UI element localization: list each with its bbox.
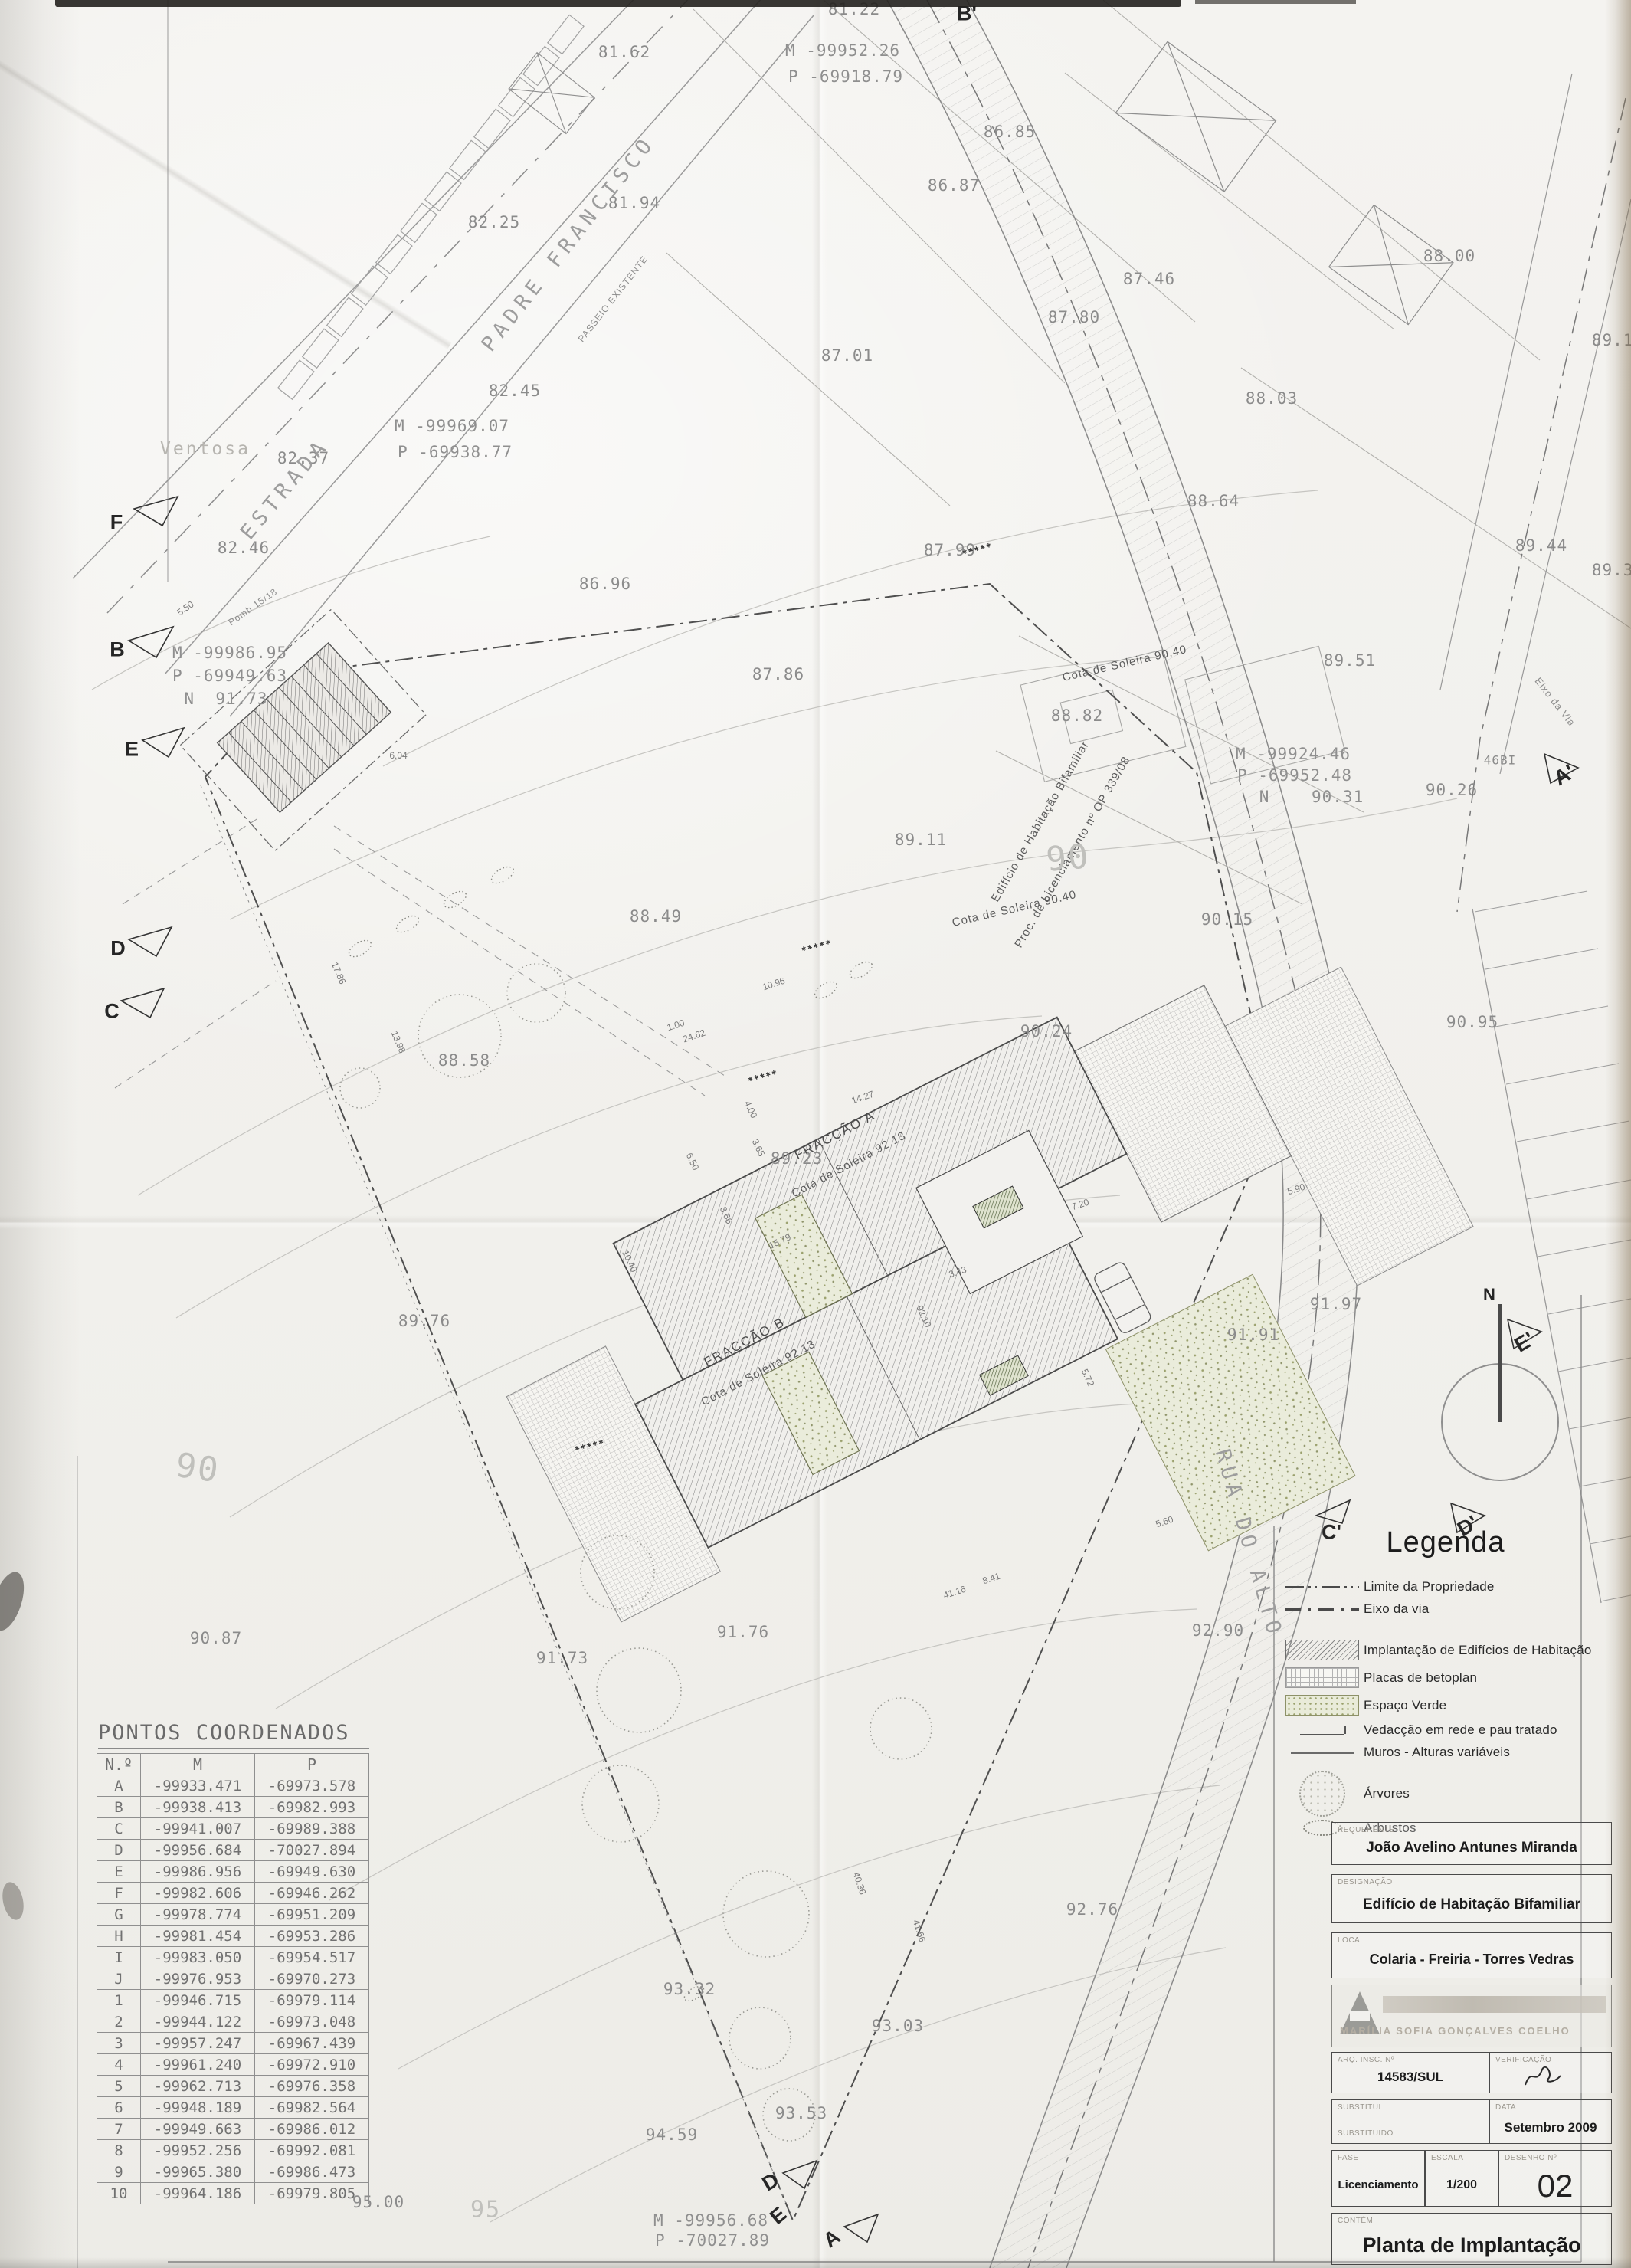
plan-label: 88.82 <box>1051 706 1103 725</box>
table-row: E-99986.956-69949.630 <box>97 1861 369 1883</box>
plan-label: 10.96 <box>761 975 787 993</box>
plan-label: 17.86 <box>329 960 349 985</box>
plan-label: 10.40 <box>620 1248 639 1273</box>
designacao-label: DESIGNAÇÃO <box>1338 1878 1393 1886</box>
betoplan-symbol-icon <box>1285 1667 1359 1688</box>
data-label: DATA <box>1495 2103 1516 2112</box>
coord-m: -99946.715 <box>141 1990 255 2011</box>
coord-p: -69946.262 <box>255 1883 369 1904</box>
plan-label: P -69952.48 <box>1237 766 1352 785</box>
plan-label: B <box>110 638 125 662</box>
plan-label: 46BI <box>1484 753 1517 768</box>
coordinates-table: PONTOS COORDENADOS N.ºMP A-99933.471-699… <box>97 1721 369 2204</box>
plan-label: ✱✱✱✱✱ <box>747 1067 779 1083</box>
legend: Legenda Limite da PropriedadeEixo da via… <box>1281 1526 1610 1843</box>
point-id: E <box>97 1861 141 1883</box>
legend-item-label: Espaço Verde <box>1364 1698 1446 1713</box>
contem-label: CONTÉM <box>1338 2217 1373 2225</box>
coord-m: -99982.606 <box>141 1883 255 1904</box>
point-id: 2 <box>97 2011 141 2033</box>
plan-label: 90 <box>1044 837 1091 880</box>
coord-m: -99956.684 <box>141 1840 255 1861</box>
legend-item-eixo: Eixo da via <box>1281 1601 1610 1617</box>
table-row: 6-99948.189-69982.564 <box>97 2097 369 2119</box>
requerente-label: REQUERENTE <box>1338 1826 1394 1834</box>
plan-label: 82.46 <box>218 539 270 557</box>
plan-label: 5.90 <box>1286 1182 1307 1198</box>
legend-item-label: Implantação de Edifícios de Habitação <box>1364 1643 1592 1658</box>
plan-label: 90.24 <box>1020 1022 1073 1041</box>
plan-label: 87.01 <box>821 346 873 365</box>
plan-label: 92.76 <box>1066 1900 1118 1919</box>
table-row: 7-99949.663-69986.012 <box>97 2119 369 2140</box>
point-id: I <box>97 1947 141 1968</box>
plan-label: 87.80 <box>1048 308 1100 326</box>
coordinates-column-header: M <box>141 1754 255 1775</box>
coord-m: -99965.380 <box>141 2161 255 2183</box>
legend-item-muros: Muros - Alturas variáveis <box>1281 1745 1610 1760</box>
coord-m: -99952.256 <box>141 2140 255 2161</box>
substitui-label: SUBSTITUI <box>1338 2103 1381 2112</box>
point-id: 9 <box>97 2161 141 2183</box>
desenho-value: 02 <box>1499 2168 1611 2204</box>
coord-m: -99933.471 <box>141 1775 255 1797</box>
escala-label: ESCALA <box>1431 2154 1463 2162</box>
table-row: 10-99964.186-69979.805 <box>97 2183 369 2204</box>
plan-label: Ventosa <box>160 439 251 459</box>
coord-p: -69949.630 <box>255 1861 369 1883</box>
plan-label: 5.60 <box>1154 1514 1175 1530</box>
substituido-label: SUBSTITUIDO <box>1338 2129 1394 2138</box>
point-id: 7 <box>97 2119 141 2140</box>
plan-label: F <box>110 511 123 535</box>
stamp-band <box>1383 1996 1606 2013</box>
plan-label: A <box>819 2225 845 2253</box>
plan-label: 92.10 <box>914 1303 933 1329</box>
legend-item-vedacao: Vedacção em rede e pau tratado <box>1281 1722 1610 1738</box>
plan-label: Eixo da Via <box>1533 675 1578 729</box>
plan-label: P -69949.63 <box>172 667 287 685</box>
table-row: 4-99961.240-69972.910 <box>97 2054 369 2076</box>
plan-label: 87.46 <box>1123 270 1175 288</box>
plan-label: Pomb 15/18 <box>226 586 279 628</box>
requerente-value: João Avelino Antunes Miranda <box>1332 1840 1611 1857</box>
coord-p: -69954.517 <box>255 1947 369 1968</box>
coord-m: -99949.663 <box>141 2119 255 2140</box>
data-value: Setembro 2009 <box>1490 2120 1611 2135</box>
plan-label: E <box>765 2202 791 2229</box>
point-id: B <box>97 1797 141 1818</box>
plan-label: P -69918.79 <box>788 67 903 86</box>
coord-p: -69973.578 <box>255 1775 369 1797</box>
plan-label: 93.03 <box>872 2017 924 2035</box>
plan-label: 8.41 <box>981 1571 1002 1587</box>
coordinates-table-header: N.ºMP <box>97 1754 369 1775</box>
coord-m: -99978.774 <box>141 1904 255 1926</box>
coord-p: -69982.993 <box>255 1797 369 1818</box>
local-label: LOCAL <box>1338 1936 1364 1945</box>
table-row: 5-99962.713-69976.358 <box>97 2076 369 2097</box>
plan-label: 7.20 <box>1070 1197 1091 1213</box>
point-id: F <box>97 1883 141 1904</box>
plan-label: C <box>104 1000 120 1024</box>
plan-label: 90.26 <box>1426 781 1478 799</box>
coord-m: -99962.713 <box>141 2076 255 2097</box>
table-row: F-99982.606-69946.262 <box>97 1883 369 1904</box>
coord-m: -99941.007 <box>141 1818 255 1840</box>
coordinates-table-title: PONTOS COORDENADOS <box>98 1721 369 1749</box>
plan-label: E <box>125 738 139 762</box>
coord-p: -69953.286 <box>255 1926 369 1947</box>
point-id: 6 <box>97 2097 141 2119</box>
table-row: D-99956.684-70027.894 <box>97 1840 369 1861</box>
plan-label: 91.91 <box>1227 1326 1279 1344</box>
coord-m: -99976.953 <box>141 1968 255 1990</box>
plan-label: P -69938.77 <box>398 443 513 461</box>
plan-label: 41.16 <box>942 1584 968 1601</box>
espaco-verde-symbol-icon <box>1285 1695 1359 1716</box>
designacao-value: Edifício de Habitação Bifamiliar <box>1332 1896 1611 1913</box>
plan-label: 81.62 <box>598 43 650 61</box>
plan-label: RUA DO ALTO <box>1210 1447 1287 1641</box>
architect-stamp-text: MARÍLIA SOFIA GONÇALVES COELHO <box>1340 2025 1608 2037</box>
plan-label: M -99969.07 <box>395 417 509 435</box>
desenho-label: DESENHO Nº <box>1505 2154 1557 2162</box>
plan-label: 40.36 <box>851 1871 869 1896</box>
table-row: J-99976.953-69970.273 <box>97 1968 369 1990</box>
coord-m: -99961.240 <box>141 2054 255 2076</box>
plan-label: 91.76 <box>717 1623 769 1641</box>
plan-label: PADRE FRANCISCO <box>477 131 660 356</box>
plan-label: 89.76 <box>398 1312 450 1330</box>
verification-signature <box>1521 2063 1574 2089</box>
plan-label: PASSEIO EXISTENTE <box>576 254 650 344</box>
plan-label: 95 <box>470 2197 501 2224</box>
paper-bottom-shadow <box>0 2257 1631 2268</box>
plan-label: 88.58 <box>438 1051 490 1070</box>
plan-label: M -99986.95 <box>172 644 287 662</box>
plan-label: 93.53 <box>775 2104 827 2122</box>
table-row: C-99941.007-69989.388 <box>97 1818 369 1840</box>
coord-m: -99944.122 <box>141 2011 255 2033</box>
escala-value: 1/200 <box>1426 2178 1498 2192</box>
point-id: D <box>97 1840 141 1861</box>
plan-label: 5.72 <box>1079 1367 1097 1388</box>
legend-item-implantacao: Implantação de Edifícios de Habitação <box>1281 1640 1610 1660</box>
coord-m: -99948.189 <box>141 2097 255 2119</box>
plan-label: 6.50 <box>684 1151 702 1172</box>
local-value: Colaria - Freiria - Torres Vedras <box>1332 1952 1611 1968</box>
coord-p: -69967.439 <box>255 2033 369 2054</box>
plan-label: P -70027.89 <box>655 2231 770 2250</box>
plan-label: 88.00 <box>1423 247 1475 265</box>
plan-label: 90.95 <box>1446 1013 1498 1031</box>
limite-symbol-icon <box>1285 1586 1359 1588</box>
paper-right-shadow <box>1605 0 1631 2268</box>
plan-label: N <box>1483 1285 1495 1305</box>
legend-item-betoplan: Placas de betoplan <box>1281 1667 1610 1688</box>
table-row: 8-99952.256-69992.081 <box>97 2140 369 2161</box>
point-id: 1 <box>97 1990 141 2011</box>
scan-top-strip-2 <box>1195 0 1356 4</box>
coord-m: -99983.050 <box>141 1947 255 1968</box>
plan-label: 6.04 <box>389 750 407 761</box>
arq-insc-label: ARQ. INSC. Nº <box>1338 2056 1394 2064</box>
plan-label: M -99956.68 <box>653 2211 768 2230</box>
coord-m: -99981.454 <box>141 1926 255 1947</box>
point-id: 8 <box>97 2140 141 2161</box>
plan-label: 93.32 <box>663 1980 716 1998</box>
plan-label: 5.50 <box>175 599 195 618</box>
plan-label: 1.00 <box>666 1018 686 1034</box>
plan-label: 41.66 <box>911 1919 928 1944</box>
table-row: 1-99946.715-69979.114 <box>97 1990 369 2011</box>
plan-label: Cota de Soleira 90.40 <box>951 888 1078 929</box>
coord-p: -69976.358 <box>255 2076 369 2097</box>
legend-item-label: Placas de betoplan <box>1364 1670 1477 1686</box>
plan-label: 13.98 <box>389 1029 408 1054</box>
vedacao-symbol-icon <box>1300 1725 1344 1735</box>
table-row: B-99938.413-69982.993 <box>97 1797 369 1818</box>
coord-p: -70027.894 <box>255 1840 369 1861</box>
plan-label: D <box>758 2168 783 2197</box>
plan-label: 89.11 <box>895 831 947 849</box>
implantacao-symbol-icon <box>1285 1640 1359 1660</box>
point-id: 3 <box>97 2033 141 2054</box>
plan-label: 88.64 <box>1187 492 1240 510</box>
table-row: H-99981.454-69953.286 <box>97 1926 369 1947</box>
scanned-site-plan-sheet: 81.2281.62M -99952.26P -69918.7986.8586.… <box>0 0 1631 2268</box>
point-id: 5 <box>97 2076 141 2097</box>
coordinates-column-header: P <box>255 1754 369 1775</box>
coord-p: -69973.048 <box>255 2011 369 2033</box>
plan-label: 87.86 <box>752 665 804 683</box>
table-row: 3-99957.247-69967.439 <box>97 2033 369 2054</box>
plan-label: 4.00 <box>742 1099 760 1119</box>
table-row: 9-99965.380-69986.473 <box>97 2161 369 2183</box>
plan-label: 82.45 <box>489 382 541 400</box>
coordinates-column-header: N.º <box>97 1754 141 1775</box>
plan-label: 82.25 <box>468 213 520 231</box>
legend-item-arvores: Árvores <box>1281 1771 1610 1817</box>
plan-label: 91.97 <box>1310 1295 1362 1313</box>
table-row: G-99978.774-69951.209 <box>97 1904 369 1926</box>
plan-label: 3.43 <box>948 1264 968 1280</box>
coord-p: -69986.473 <box>255 2161 369 2183</box>
plan-label: 24.62 <box>682 1027 707 1045</box>
plan-label: 91.73 <box>536 1649 588 1667</box>
coord-m: -99964.186 <box>141 2183 255 2204</box>
plan-label: Edifício de Habitação Bifamiliar <box>989 739 1092 904</box>
table-row: A-99933.471-69973.578 <box>97 1775 369 1797</box>
coord-p: -69992.081 <box>255 2140 369 2161</box>
plan-label: E' <box>1511 1327 1539 1357</box>
plan-label: 89.44 <box>1515 536 1567 555</box>
plan-label: 94.59 <box>646 2125 698 2144</box>
fase-value: Licenciamento <box>1332 2178 1424 2191</box>
arq-insc-value: 14583/SUL <box>1332 2070 1489 2085</box>
coord-p: -69986.012 <box>255 2119 369 2140</box>
plan-label: 86.96 <box>579 575 631 593</box>
plan-label: 90.15 <box>1201 910 1253 929</box>
coord-m: -99957.247 <box>141 2033 255 2054</box>
point-id: H <box>97 1926 141 1947</box>
plan-label: N 91.73 <box>184 690 267 708</box>
plan-label: ✱✱✱✱✱ <box>574 1437 606 1453</box>
coord-m: -99938.413 <box>141 1797 255 1818</box>
plan-label: 88.03 <box>1246 389 1298 408</box>
plan-label: 3.65 <box>750 1137 768 1158</box>
plan-label: 3.66 <box>718 1204 735 1225</box>
contem-value: Planta de Implantação <box>1332 2234 1611 2257</box>
plan-label: ✱✱✱✱✱ <box>801 937 833 953</box>
legend-item-label: Árvores <box>1364 1786 1410 1801</box>
plan-label: 92.90 <box>1192 1621 1244 1640</box>
legend-item-label: Limite da Propriedade <box>1364 1579 1495 1594</box>
plan-label: M -99924.46 <box>1236 745 1351 763</box>
table-row: 2-99944.122-69973.048 <box>97 2011 369 2033</box>
legend-item-label: Muros - Alturas variáveis <box>1364 1745 1510 1760</box>
coord-p: -69972.910 <box>255 2054 369 2076</box>
coord-p: -69979.805 <box>255 2183 369 2204</box>
legend-item-label: Eixo da via <box>1364 1601 1429 1617</box>
plan-label: 86.85 <box>984 123 1036 141</box>
plan-label: A' <box>1550 760 1579 791</box>
coord-p: -69989.388 <box>255 1818 369 1840</box>
eixo-symbol-icon <box>1285 1608 1359 1611</box>
legend-title: Legenda <box>1281 1526 1610 1559</box>
point-id: 10 <box>97 2183 141 2204</box>
point-id: J <box>97 1968 141 1990</box>
point-id: C <box>97 1818 141 1840</box>
coord-p: -69979.114 <box>255 1990 369 2011</box>
plan-label: 88.49 <box>630 907 682 926</box>
plan-label: D <box>110 937 126 961</box>
coord-p: -69982.564 <box>255 2097 369 2119</box>
fase-label: FASE <box>1338 2154 1359 2162</box>
plan-label: 14.27 <box>850 1089 876 1106</box>
plan-label: 15.79 <box>767 1231 792 1250</box>
legend-item-label: Vedacção em rede e pau tratado <box>1364 1722 1557 1738</box>
coord-m: -99986.956 <box>141 1861 255 1883</box>
scan-top-strip <box>55 0 1181 7</box>
point-id: G <box>97 1904 141 1926</box>
plan-label: 90 <box>173 1446 222 1490</box>
plan-label: 90.87 <box>190 1629 242 1647</box>
table-row: I-99983.050-69954.517 <box>97 1947 369 1968</box>
plan-label: 86.87 <box>928 176 980 195</box>
arvores-symbol-icon <box>1299 1771 1345 1817</box>
point-id: A <box>97 1775 141 1797</box>
legend-item-limite: Limite da Propriedade <box>1281 1579 1610 1594</box>
plan-label: M -99952.26 <box>785 41 900 60</box>
coord-p: -69951.209 <box>255 1904 369 1926</box>
plan-label: Cota de Soleira 90.40 <box>1061 643 1188 684</box>
coord-p: -69970.273 <box>255 1968 369 1990</box>
plan-label: N 90.31 <box>1259 788 1364 806</box>
legend-item-espaco-verde: Espaço Verde <box>1281 1695 1610 1716</box>
point-id: 4 <box>97 2054 141 2076</box>
muros-symbol-icon <box>1291 1752 1354 1754</box>
plan-label: 89.51 <box>1324 651 1376 670</box>
